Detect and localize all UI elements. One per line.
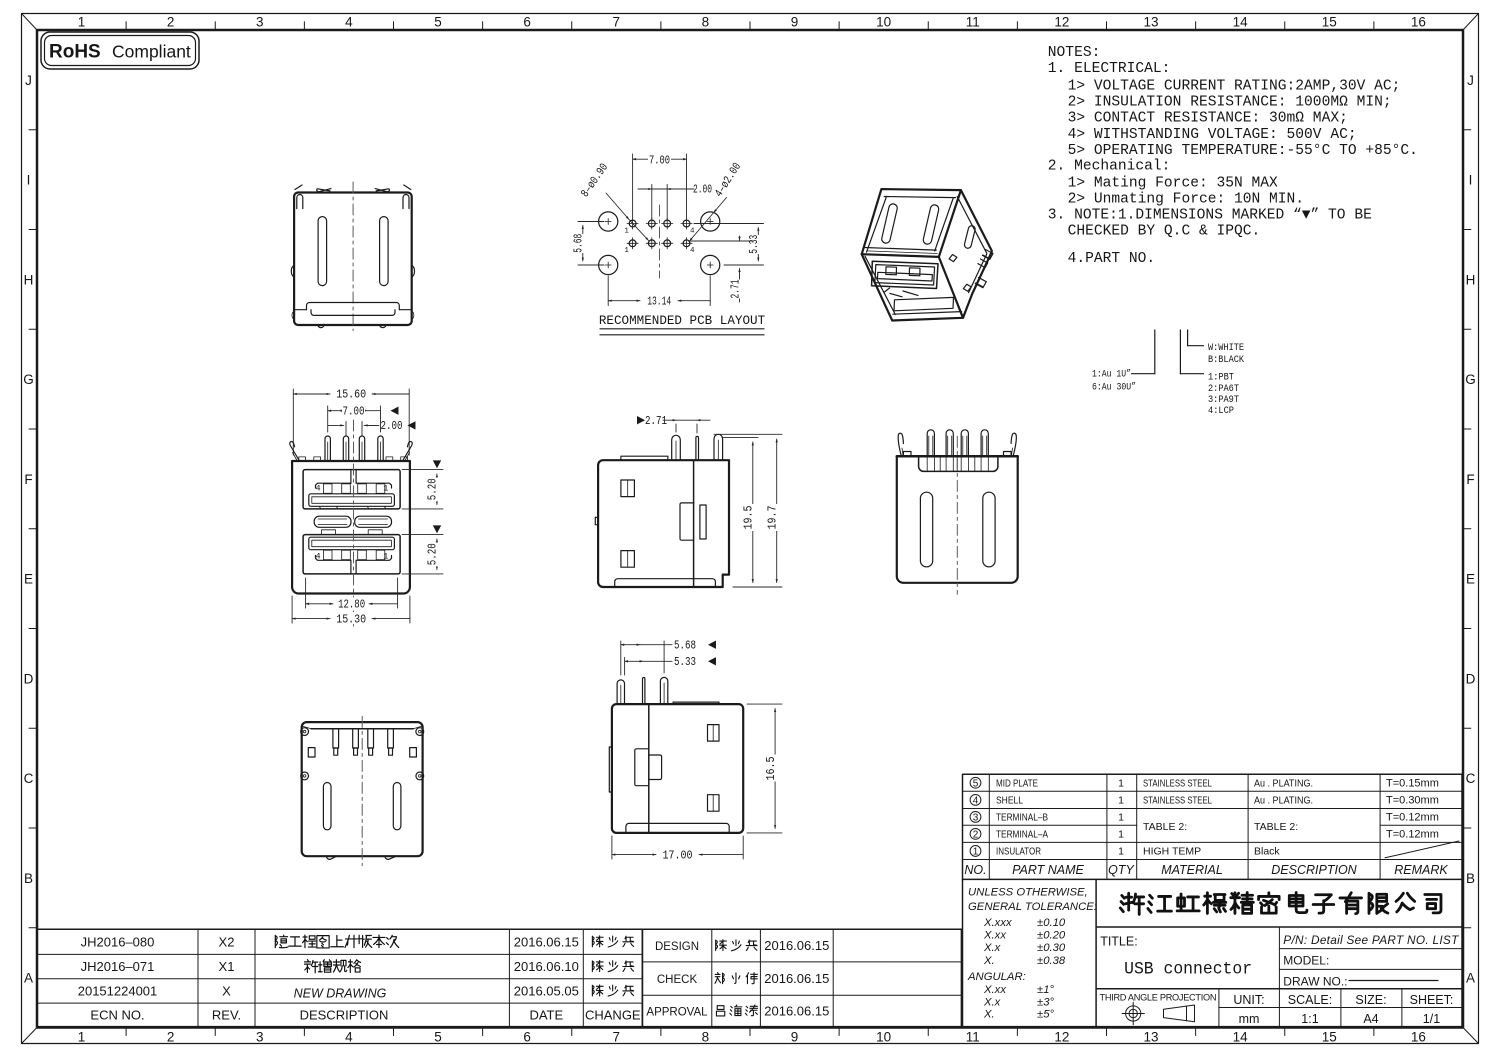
svg-text:6:Au 30U”: 6:Au 30U” <box>1092 382 1136 394</box>
svg-text:16.5: 16.5 <box>764 757 778 781</box>
svg-text:15: 15 <box>1322 15 1337 30</box>
svg-text:2.71: 2.71 <box>728 280 742 299</box>
svg-text:F: F <box>24 472 32 487</box>
svg-text:8: 8 <box>702 15 710 30</box>
svg-text:J: J <box>25 73 32 88</box>
svg-text:20151224001: 20151224001 <box>78 983 158 998</box>
svg-text:2016.05.05: 2016.05.05 <box>514 983 579 998</box>
svg-text:Black: Black <box>1254 846 1280 858</box>
svg-text:19.7: 19.7 <box>765 506 779 530</box>
svg-text:SHEET:: SHEET: <box>1410 993 1454 1007</box>
svg-text:5: 5 <box>434 15 442 30</box>
svg-text:SHELL: SHELL <box>996 795 1023 807</box>
svg-text:USB connector: USB connector <box>1124 960 1252 980</box>
svg-text:TERMINAL–B: TERMINAL–B <box>996 812 1048 824</box>
svg-text:6: 6 <box>523 15 531 30</box>
svg-text:INSULATOR: INSULATOR <box>996 846 1041 858</box>
svg-text:16: 16 <box>1411 1030 1426 1045</box>
svg-text:7.00: 7.00 <box>649 153 670 167</box>
svg-text:DATE: DATE <box>529 1007 563 1022</box>
svg-text:DESCRIPTION: DESCRIPTION <box>1271 863 1357 877</box>
svg-text:1: 1 <box>1118 846 1124 858</box>
svg-text:4: 4 <box>690 227 695 235</box>
svg-text:15.60: 15.60 <box>336 388 366 402</box>
svg-text:X.x: X.x <box>983 942 1001 954</box>
svg-text:5.33: 5.33 <box>674 655 696 669</box>
svg-text:5.20: 5.20 <box>426 543 440 565</box>
svg-text:17.00: 17.00 <box>663 848 693 862</box>
svg-text:2> Unmating Force: 10N MIN.: 2> Unmating Force: 10N MIN. <box>1068 192 1304 208</box>
svg-text:2016.06.10: 2016.06.10 <box>514 959 579 974</box>
svg-text:T=0.15mm: T=0.15mm <box>1386 777 1439 789</box>
svg-text:4.PART NO.: 4.PART NO. <box>1068 251 1156 267</box>
svg-text:ANGULAR:: ANGULAR: <box>967 971 1026 983</box>
svg-text:2.00: 2.00 <box>693 182 712 196</box>
svg-text:2016.06.15: 2016.06.15 <box>764 938 829 953</box>
svg-text:7: 7 <box>613 1030 621 1045</box>
svg-text:TABLE 2:: TABLE 2: <box>1254 821 1298 833</box>
svg-text:6: 6 <box>523 1030 531 1045</box>
svg-text:Au . PLATING.: Au . PLATING. <box>1254 795 1313 807</box>
svg-text:RECOMMENDED PCB LAYOUT: RECOMMENDED PCB LAYOUT <box>599 314 766 328</box>
svg-text:B: B <box>24 871 33 886</box>
svg-text:4: 4 <box>690 247 695 255</box>
svg-text:±3°: ±3° <box>1037 997 1054 1009</box>
svg-text:F: F <box>1466 472 1474 487</box>
svg-text:2016.06.15: 2016.06.15 <box>764 971 829 986</box>
svg-text:NO.: NO. <box>964 863 986 877</box>
svg-text:H: H <box>24 272 34 287</box>
svg-text:13: 13 <box>1144 1030 1159 1045</box>
svg-text:1: 1 <box>383 552 388 562</box>
svg-text:1> VOLTAGE CURRENT RATING:2AMP: 1> VOLTAGE CURRENT RATING:2AMP,30V AC; <box>1068 78 1401 94</box>
svg-text:2: 2 <box>973 829 979 840</box>
svg-text:X.: X. <box>983 955 995 967</box>
svg-text:STAINLESS STEEL: STAINLESS STEEL <box>1143 795 1212 807</box>
svg-text:12.80: 12.80 <box>338 598 365 612</box>
svg-text:CHECK: CHECK <box>657 974 698 986</box>
svg-text:UNLESS OTHERWISE,: UNLESS OTHERWISE, <box>968 886 1088 898</box>
svg-text:13.14: 13.14 <box>647 295 671 309</box>
svg-text:TITLE:: TITLE: <box>1100 934 1138 948</box>
svg-text:1: 1 <box>383 484 388 494</box>
svg-text:JH2016–080: JH2016–080 <box>81 934 155 949</box>
svg-text:NOTES:: NOTES: <box>1048 45 1101 61</box>
svg-text:±1°: ±1° <box>1037 984 1054 996</box>
svg-text:5.68: 5.68 <box>572 234 586 253</box>
svg-text:C: C <box>1466 771 1476 786</box>
svg-text:15.30: 15.30 <box>336 612 366 626</box>
svg-text:1:PBT: 1:PBT <box>1208 372 1234 384</box>
svg-text:15: 15 <box>1322 1030 1337 1045</box>
svg-text:1/1: 1/1 <box>1423 1012 1440 1026</box>
svg-text:G: G <box>1465 372 1476 387</box>
svg-text:P/N: Detail See PART NO. LIST: P/N: Detail See PART NO. LIST <box>1283 933 1459 947</box>
svg-text:8: 8 <box>702 1030 710 1045</box>
svg-text:TERMINAL–A: TERMINAL–A <box>996 828 1048 840</box>
svg-text:1: 1 <box>973 847 979 858</box>
svg-text:7: 7 <box>613 15 621 30</box>
svg-text:3: 3 <box>973 813 979 824</box>
svg-text:3. NOTE:1.DIMENSIONS MARKED “▼: 3. NOTE:1.DIMENSIONS MARKED “▼” TO BE <box>1048 207 1372 223</box>
svg-text:9: 9 <box>791 15 799 30</box>
svg-text:G: G <box>23 372 34 387</box>
svg-text:5.20: 5.20 <box>426 478 440 500</box>
svg-text:X.x: X.x <box>983 997 1001 1009</box>
svg-text:I: I <box>1469 173 1473 188</box>
svg-text:4: 4 <box>315 484 320 494</box>
svg-text:±5°: ±5° <box>1037 1008 1054 1020</box>
svg-text:13: 13 <box>1144 15 1159 30</box>
svg-text:14: 14 <box>1233 15 1249 30</box>
svg-text:2. Mechanical:: 2. Mechanical: <box>1048 159 1171 175</box>
svg-text:4> WITHSTANDING VOLTAGE: 500V: 4> WITHSTANDING VOLTAGE: 500V AC; <box>1068 127 1357 143</box>
svg-text:X.xxx: X.xxx <box>983 917 1012 929</box>
svg-text:19.5: 19.5 <box>742 506 756 530</box>
svg-text:DRAW NO.:: DRAW NO.: <box>1283 974 1347 988</box>
svg-text:REV.: REV. <box>212 1007 241 1022</box>
svg-text:QTY: QTY <box>1108 863 1135 877</box>
svg-text:D: D <box>1466 671 1476 686</box>
svg-text:REMARK: REMARK <box>1394 863 1448 877</box>
svg-text:3: 3 <box>256 15 264 30</box>
svg-text:±0.38: ±0.38 <box>1037 955 1066 967</box>
svg-text:DESCRIPTION: DESCRIPTION <box>300 1007 389 1022</box>
svg-text:16: 16 <box>1411 15 1426 30</box>
svg-text:APPROVAL: APPROVAL <box>646 1007 708 1019</box>
svg-text:±0.30: ±0.30 <box>1037 942 1066 954</box>
svg-text:2.71: 2.71 <box>645 414 667 428</box>
svg-text:I: I <box>27 173 31 188</box>
svg-text:A4: A4 <box>1363 1012 1378 1026</box>
svg-text:1> Mating Force: 35N MAX: 1> Mating Force: 35N MAX <box>1068 176 1278 192</box>
svg-text:10: 10 <box>876 1030 891 1045</box>
svg-text:W:WHITE: W:WHITE <box>1208 342 1244 354</box>
svg-text:1: 1 <box>1118 812 1124 824</box>
svg-text:X.: X. <box>983 1008 995 1020</box>
svg-text:PART NAME: PART NAME <box>1012 863 1084 877</box>
svg-text:mm: mm <box>1239 1012 1260 1026</box>
svg-text:4: 4 <box>973 796 979 807</box>
svg-text:X: X <box>222 983 231 998</box>
svg-text:3: 3 <box>256 1030 264 1045</box>
svg-text:A: A <box>1466 971 1475 986</box>
svg-text:12: 12 <box>1054 15 1069 30</box>
svg-text:5: 5 <box>434 1030 442 1045</box>
svg-text:CHECKED BY Q.C & IPQC.: CHECKED BY Q.C & IPQC. <box>1068 223 1261 239</box>
svg-text:4: 4 <box>345 1030 353 1045</box>
svg-text:RoHS: RoHS <box>49 42 101 63</box>
svg-text:11: 11 <box>966 1030 980 1045</box>
svg-text:X1: X1 <box>219 959 235 974</box>
svg-text:5.33: 5.33 <box>747 235 761 254</box>
svg-text:4: 4 <box>345 15 353 30</box>
svg-text:B:BLACK: B:BLACK <box>1208 354 1245 366</box>
svg-text:1:1: 1:1 <box>1301 1012 1318 1026</box>
svg-text:2: 2 <box>167 1030 175 1045</box>
svg-text:4:LCP: 4:LCP <box>1208 405 1234 417</box>
svg-text:1: 1 <box>78 1030 86 1045</box>
svg-text:1: 1 <box>1118 828 1124 840</box>
svg-text:ECN NO.: ECN NO. <box>90 1007 144 1022</box>
svg-text:H: H <box>1466 272 1476 287</box>
svg-text:GENERAL TOLERANCE:: GENERAL TOLERANCE: <box>968 901 1097 913</box>
svg-text:A: A <box>24 971 33 986</box>
svg-text:SCALE:: SCALE: <box>1288 993 1332 1007</box>
svg-text:10: 10 <box>876 15 891 30</box>
svg-text:STAINLESS STEEL: STAINLESS STEEL <box>1143 777 1212 789</box>
svg-text:1: 1 <box>624 227 629 235</box>
svg-text:T=0.12mm: T=0.12mm <box>1386 829 1439 841</box>
svg-text:5> OPERATING TEMPERATURE:-55°C: 5> OPERATING TEMPERATURE:-55°C TO +85°C. <box>1068 143 1418 159</box>
svg-text:2.00: 2.00 <box>381 419 403 433</box>
svg-text:JH2016–071: JH2016–071 <box>81 959 155 974</box>
svg-text:5: 5 <box>973 778 979 789</box>
svg-text:MID PLATE: MID PLATE <box>996 777 1038 789</box>
svg-text:2> INSULATION RESISTANCE: 1000: 2> INSULATION RESISTANCE: 1000MΩ MIN; <box>1068 94 1392 110</box>
svg-text:5.68: 5.68 <box>674 639 696 653</box>
svg-text:MATERIAL: MATERIAL <box>1161 863 1223 877</box>
svg-text:X.xx: X.xx <box>983 984 1006 996</box>
svg-text:1:Au 1U”: 1:Au 1U” <box>1092 369 1131 381</box>
svg-text:1. ELECTRICAL:: 1. ELECTRICAL: <box>1048 61 1171 77</box>
svg-text:1: 1 <box>624 247 629 255</box>
svg-text:1: 1 <box>1118 777 1124 789</box>
svg-text:2016.06.15: 2016.06.15 <box>514 934 579 949</box>
svg-text:2: 2 <box>167 15 175 30</box>
svg-text:2016.06.15: 2016.06.15 <box>764 1004 829 1019</box>
svg-text:MODEL:: MODEL: <box>1283 954 1329 968</box>
svg-text:C: C <box>24 771 34 786</box>
svg-text:12: 12 <box>1054 1030 1069 1045</box>
svg-text:3> CONTACT RESISTANCE: 30mΩ MA: 3> CONTACT RESISTANCE: 30mΩ MAX; <box>1068 110 1348 126</box>
svg-text:E: E <box>1466 572 1475 587</box>
svg-text:HIGH TEMP: HIGH TEMP <box>1143 846 1201 858</box>
svg-text:Compliant: Compliant <box>112 42 191 62</box>
svg-text:X.xx: X.xx <box>983 930 1006 942</box>
svg-text:±0.20: ±0.20 <box>1037 930 1066 942</box>
svg-text:THIRD ANGLE PROJECTION: THIRD ANGLE PROJECTION <box>1100 992 1217 1002</box>
svg-text:D: D <box>24 671 34 686</box>
svg-text:J: J <box>1467 73 1474 88</box>
svg-text:B: B <box>1466 871 1475 886</box>
svg-text:1: 1 <box>1118 795 1124 807</box>
svg-text:UNIT:: UNIT: <box>1233 993 1264 1007</box>
svg-text:SIZE:: SIZE: <box>1355 993 1386 1007</box>
svg-text:4: 4 <box>315 552 320 562</box>
svg-text:CHANGE: CHANGE <box>585 1007 641 1022</box>
svg-text:Au . PLATING.: Au . PLATING. <box>1254 777 1313 789</box>
svg-text:11: 11 <box>966 15 980 30</box>
svg-text:NEW DRAWING: NEW DRAWING <box>294 987 387 1001</box>
svg-text:±0.10: ±0.10 <box>1037 917 1066 929</box>
svg-text:7.00: 7.00 <box>343 404 365 418</box>
svg-text:DESIGN: DESIGN <box>655 941 699 953</box>
svg-text:E: E <box>24 572 33 587</box>
svg-text:14: 14 <box>1233 1030 1249 1045</box>
svg-text:X2: X2 <box>219 934 235 949</box>
svg-text:TABLE 2:: TABLE 2: <box>1143 821 1187 833</box>
svg-text:1: 1 <box>78 15 86 30</box>
svg-text:T=0.30mm: T=0.30mm <box>1386 795 1439 807</box>
svg-text:9: 9 <box>791 1030 799 1045</box>
svg-text:T=0.12mm: T=0.12mm <box>1386 812 1439 824</box>
